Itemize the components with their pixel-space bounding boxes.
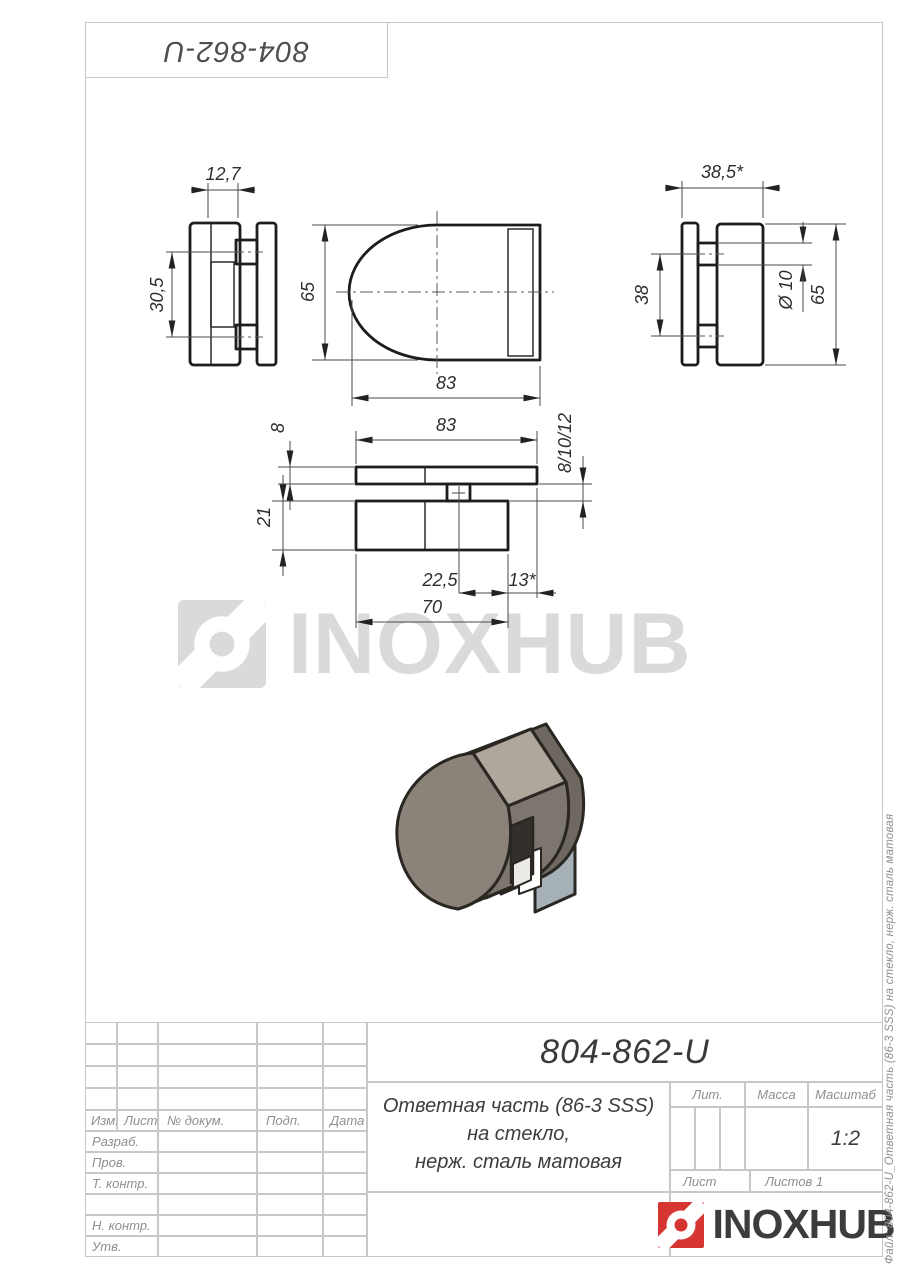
part-designation: 804-862-U (540, 1033, 710, 1072)
header-massa: Масса (745, 1082, 808, 1107)
row-prov: Пров. (85, 1152, 158, 1173)
empty-cell (367, 1192, 670, 1257)
header-masshtab: Масштаб (808, 1082, 883, 1107)
row-n-kontr: Н. контр. (85, 1215, 158, 1236)
col-list: Лист (117, 1110, 158, 1131)
dim-side-left-width: 12,7 (205, 164, 241, 184)
col-n-dokum: № докум. (158, 1110, 257, 1131)
dim-side-left-height: 30,5 (147, 277, 167, 313)
header-lit: Лит. (670, 1082, 745, 1107)
dim-section-lip: 13* (508, 570, 536, 590)
massa-value (745, 1107, 808, 1170)
isometric-view (383, 708, 613, 938)
description-cell: Ответная часть (86-3 SSS) на стекло, нер… (367, 1082, 670, 1192)
inoxhub-logo-text: INOXHUB (712, 1204, 894, 1245)
dim-side-right-diameter: Ø 10 (776, 270, 796, 310)
dim-side-right-bosses: 38 (632, 285, 652, 305)
dim-side-right-width: 38,5* (701, 162, 744, 182)
row-blank (85, 1194, 158, 1215)
dim-side-right-height: 65 (808, 284, 828, 305)
dim-section-gap: 8/10/12 (555, 413, 575, 473)
revision-header-row: Изм. Лист № докум. Подп. Дата (85, 1110, 367, 1131)
view-side-right: 38,5* 38 Ø 10 65 (632, 162, 846, 365)
dim-section-base: 70 (422, 597, 442, 617)
dim-section-width: 83 (436, 415, 456, 435)
description-line-1: Ответная часть (86-3 SSS) (368, 1092, 669, 1120)
dim-section-body: 21 (254, 507, 274, 528)
masshtab-value: 1:2 (808, 1107, 883, 1170)
inoxhub-logo-icon (658, 1202, 704, 1248)
scale-value: 1:2 (831, 1127, 860, 1151)
dim-section-plate: 8 (268, 423, 288, 433)
designation-cell: 804-862-U (367, 1022, 883, 1082)
row-t-kontr: Т. контр. (85, 1173, 158, 1194)
staff-rows: Разраб. Пров. Т. контр. Н. контр. Утв. (85, 1131, 367, 1257)
view-section: 8 83 8/10/12 21 22,5 13* 70 (254, 413, 592, 628)
dim-section-offset: 22,5 (421, 570, 458, 590)
col-podp: Подп. (257, 1110, 323, 1131)
description-line-2: на стекло, (368, 1120, 669, 1148)
description-line-3: нерж. сталь матовая (368, 1148, 669, 1176)
row-utv: Утв. (85, 1236, 158, 1257)
revision-table (85, 1022, 367, 1110)
file-note: Файл: 804-862-U_Ответная часть (86-3 SSS… (884, 852, 904, 1264)
dim-front-width: 83 (436, 373, 456, 393)
lit-value (670, 1107, 745, 1170)
col-data: Дата (323, 1110, 367, 1131)
view-side-left: 12,7 30,5 (147, 164, 276, 365)
sheet-cell: Лист (670, 1170, 750, 1192)
sheets-cell: Листов 1 (750, 1170, 883, 1192)
view-front: 65 83 (298, 211, 554, 406)
row-razrab: Разраб. (85, 1131, 158, 1152)
col-izm: Изм. (85, 1110, 117, 1131)
logo-cell: INOXHUB (670, 1192, 883, 1257)
dim-front-height: 65 (298, 281, 318, 302)
